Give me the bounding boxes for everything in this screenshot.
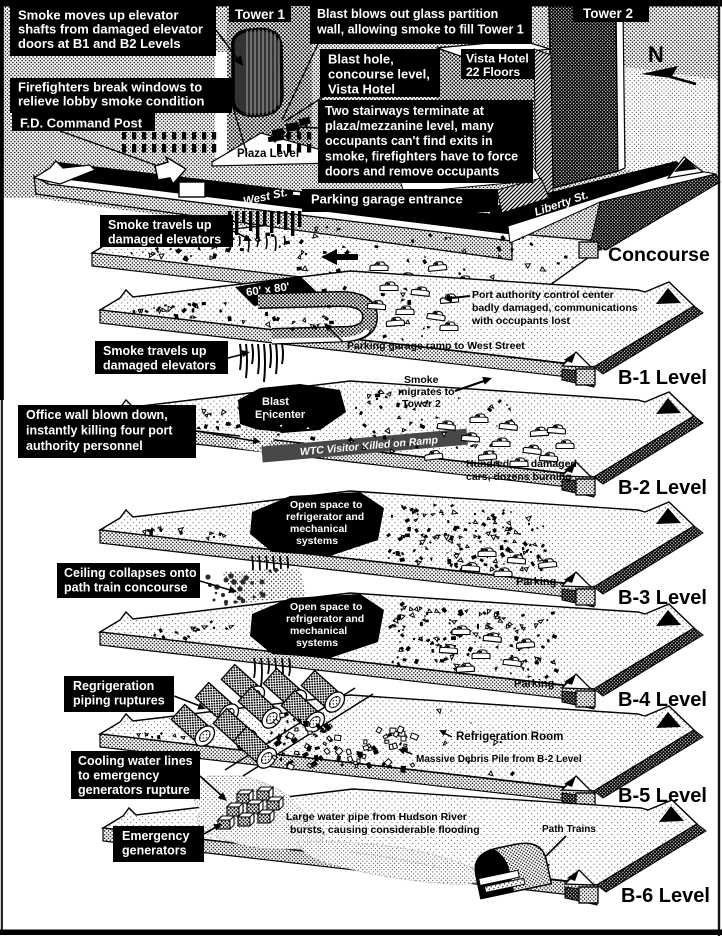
svg-text:Tower 2: Tower 2 xyxy=(402,398,441,410)
svg-text:doors at B1 and B2 Levels: doors at B1 and B2 Levels xyxy=(18,36,181,51)
svg-text:damaged elevators: damaged elevators xyxy=(108,233,221,247)
svg-text:Parking: Parking xyxy=(514,678,554,690)
svg-text:refrigerator and: refrigerator and xyxy=(286,613,364,625)
svg-text:migrates to: migrates to xyxy=(398,386,455,398)
svg-text:shafts from damaged elevator: shafts from damaged elevator xyxy=(18,22,203,37)
svg-text:path train concourse: path train concourse xyxy=(64,581,188,595)
svg-text:B-4 Level: B-4 Level xyxy=(618,689,707,711)
svg-text:Epicenter: Epicenter xyxy=(255,409,306,421)
svg-text:Parking garage entrance: Parking garage entrance xyxy=(311,192,463,207)
svg-text:generators: generators xyxy=(122,844,187,858)
svg-text:Parking: Parking xyxy=(516,576,556,588)
svg-text:cars, dozens burning: cars, dozens burning xyxy=(466,471,572,483)
svg-text:Two stairways terminate at: Two stairways terminate at xyxy=(325,104,485,118)
svg-text:badly damaged, communications: badly damaged, communications xyxy=(472,302,638,314)
svg-text:authority personnel: authority personnel xyxy=(26,439,143,453)
svg-text:Vista Hotel: Vista Hotel xyxy=(328,82,395,97)
svg-text:Path Trains: Path Trains xyxy=(542,824,596,835)
svg-text:B-2 Level: B-2 Level xyxy=(618,477,707,499)
svg-text:bursts, causing considerable f: bursts, causing considerable flooding xyxy=(290,824,480,836)
svg-text:Parking garage ramp to West St: Parking garage ramp to West Street xyxy=(347,340,525,352)
svg-text:Port authority control center: Port authority control center xyxy=(472,289,614,301)
svg-text:plaza/mezzanine level, many: plaza/mezzanine level, many xyxy=(325,119,494,133)
svg-text:wall, allowing smoke to fill T: wall, allowing smoke to fill Tower 1 xyxy=(316,23,524,37)
svg-text:generators rupture: generators rupture xyxy=(78,783,190,797)
svg-text:Cooling water lines: Cooling water lines xyxy=(78,754,193,768)
svg-text:B-6 Level: B-6 Level xyxy=(621,885,710,907)
svg-text:Refrigeration Room: Refrigeration Room xyxy=(456,731,563,743)
svg-text:piping ruptures: piping ruptures xyxy=(73,694,165,708)
svg-text:Smoke travels up: Smoke travels up xyxy=(108,218,212,232)
svg-text:mechanical: mechanical xyxy=(290,625,347,637)
svg-text:Smoke moves up elevator: Smoke moves up elevator xyxy=(18,8,178,23)
svg-text:systems: systems xyxy=(296,535,338,547)
svg-text:concourse level,: concourse level, xyxy=(328,67,430,82)
svg-text:Firefighters break windows to: Firefighters break windows to xyxy=(18,80,202,95)
svg-text:22 Floors: 22 Floors xyxy=(466,65,520,79)
svg-text:Tower 2: Tower 2 xyxy=(583,6,633,21)
svg-text:relieve lobby smoke condition: relieve lobby smoke condition xyxy=(18,94,204,109)
svg-text:F.D. Command Post: F.D. Command Post xyxy=(20,116,143,131)
svg-text:Large water pipe from Hudson R: Large water pipe from Hudson River xyxy=(286,811,467,823)
svg-text:Blast: Blast xyxy=(262,396,289,408)
svg-text:Massive Debris Pile from B-2 L: Massive Debris Pile from B-2 Level xyxy=(416,754,582,765)
svg-text:Ceiling collapses onto: Ceiling collapses onto xyxy=(64,566,197,580)
svg-text:Blast hole,: Blast hole, xyxy=(328,52,394,67)
svg-text:Smoke travels up: Smoke travels up xyxy=(103,344,207,358)
svg-text:doors and remove occupants: doors and remove occupants xyxy=(325,165,499,179)
svg-text:Smoke: Smoke xyxy=(404,374,439,386)
svg-text:N: N xyxy=(648,42,664,67)
svg-text:damaged elevators: damaged elevators xyxy=(103,359,216,373)
svg-text:instantly killing four port: instantly killing four port xyxy=(26,424,173,438)
svg-text:Emergency: Emergency xyxy=(122,829,189,843)
svg-text:Open space to: Open space to xyxy=(290,499,362,511)
svg-text:smoke, firefighters have to fo: smoke, firefighters have to force xyxy=(325,149,518,163)
svg-text:systems: systems xyxy=(296,637,338,649)
svg-text:B-1 Level: B-1 Level xyxy=(618,367,707,389)
svg-text:Tower 1: Tower 1 xyxy=(235,7,286,22)
svg-text:with occupants lost: with occupants lost xyxy=(471,315,571,327)
svg-text:Blast blows out glass partitio: Blast blows out glass partition xyxy=(317,7,498,21)
svg-text:Open space to: Open space to xyxy=(290,601,362,613)
svg-text:refrigerator and: refrigerator and xyxy=(286,511,364,523)
svg-text:Office wall blown down,: Office wall blown down, xyxy=(26,408,168,422)
svg-text:B-3 Level: B-3 Level xyxy=(618,587,707,609)
svg-text:occupants can't find exits in: occupants can't find exits in xyxy=(325,134,493,148)
svg-text:Vista Hotel: Vista Hotel xyxy=(466,52,529,66)
svg-text:mechanical: mechanical xyxy=(290,523,347,535)
svg-text:Regrigeration: Regrigeration xyxy=(73,679,154,693)
svg-text:to emergency: to emergency xyxy=(78,769,159,783)
svg-text:Concourse: Concourse xyxy=(608,244,710,266)
